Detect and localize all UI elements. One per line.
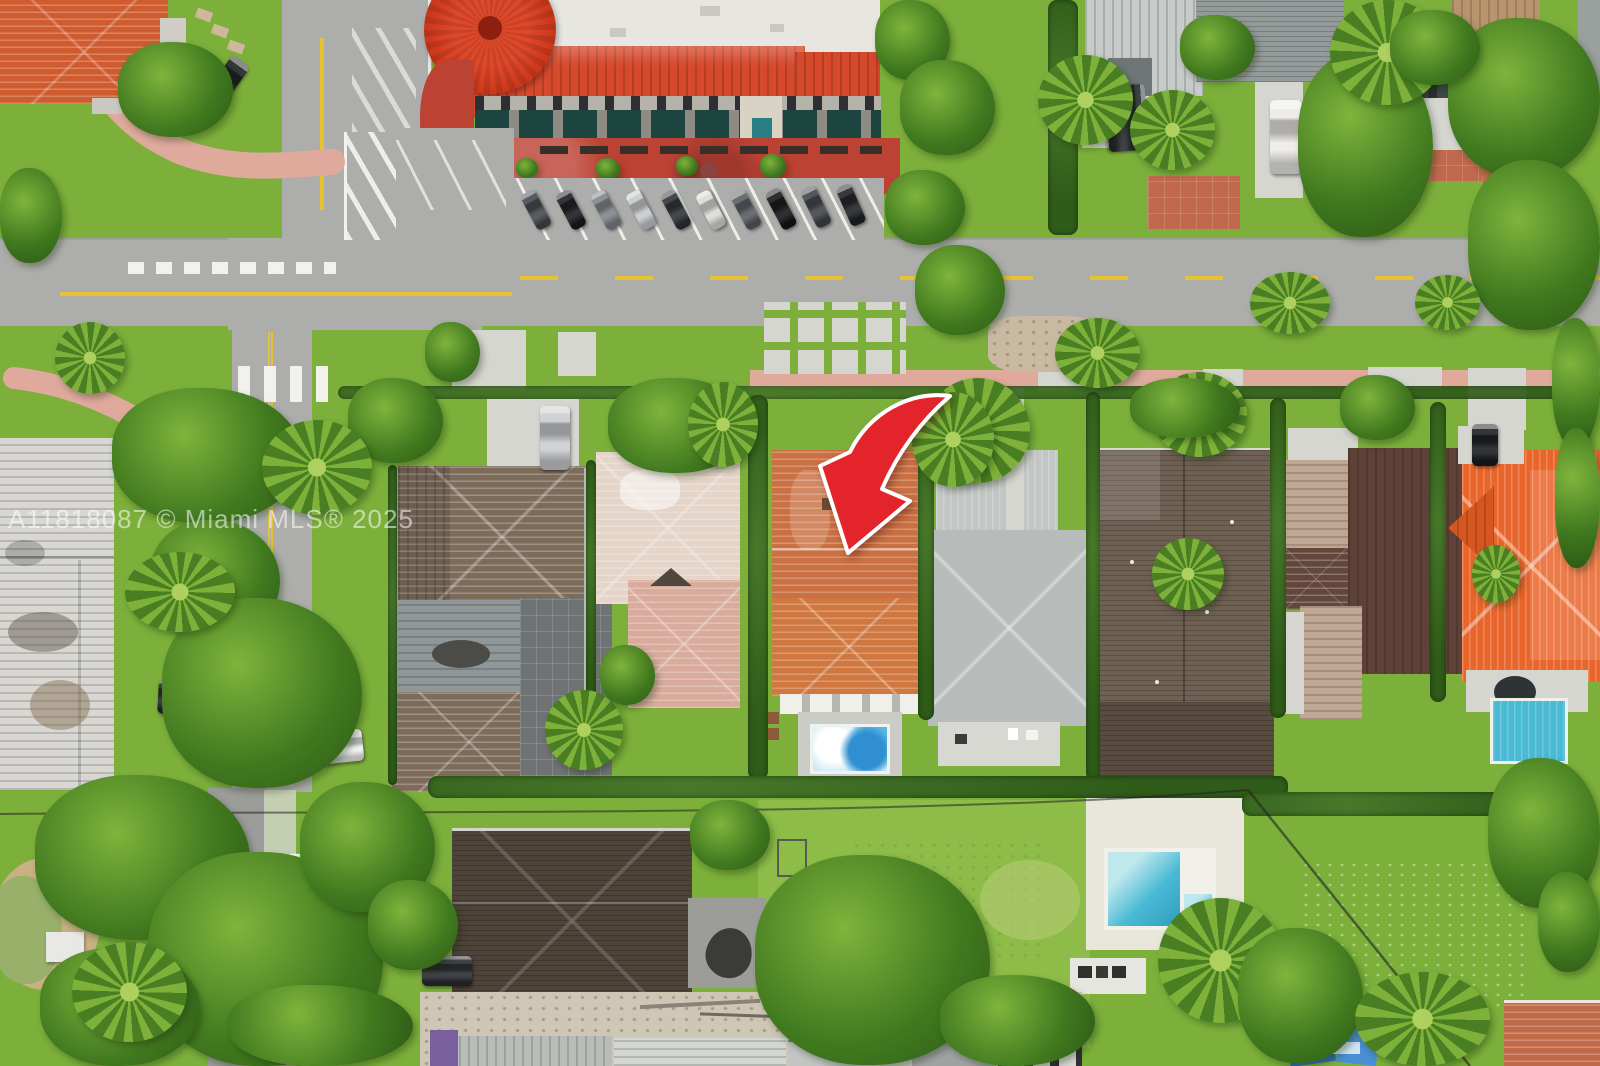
mls-watermark: A11818087 © Miami MLS® 2025	[8, 504, 414, 535]
aerial-photo: A11818087 © Miami MLS® 2025	[0, 0, 1600, 1066]
red-arrow-icon	[820, 395, 950, 553]
